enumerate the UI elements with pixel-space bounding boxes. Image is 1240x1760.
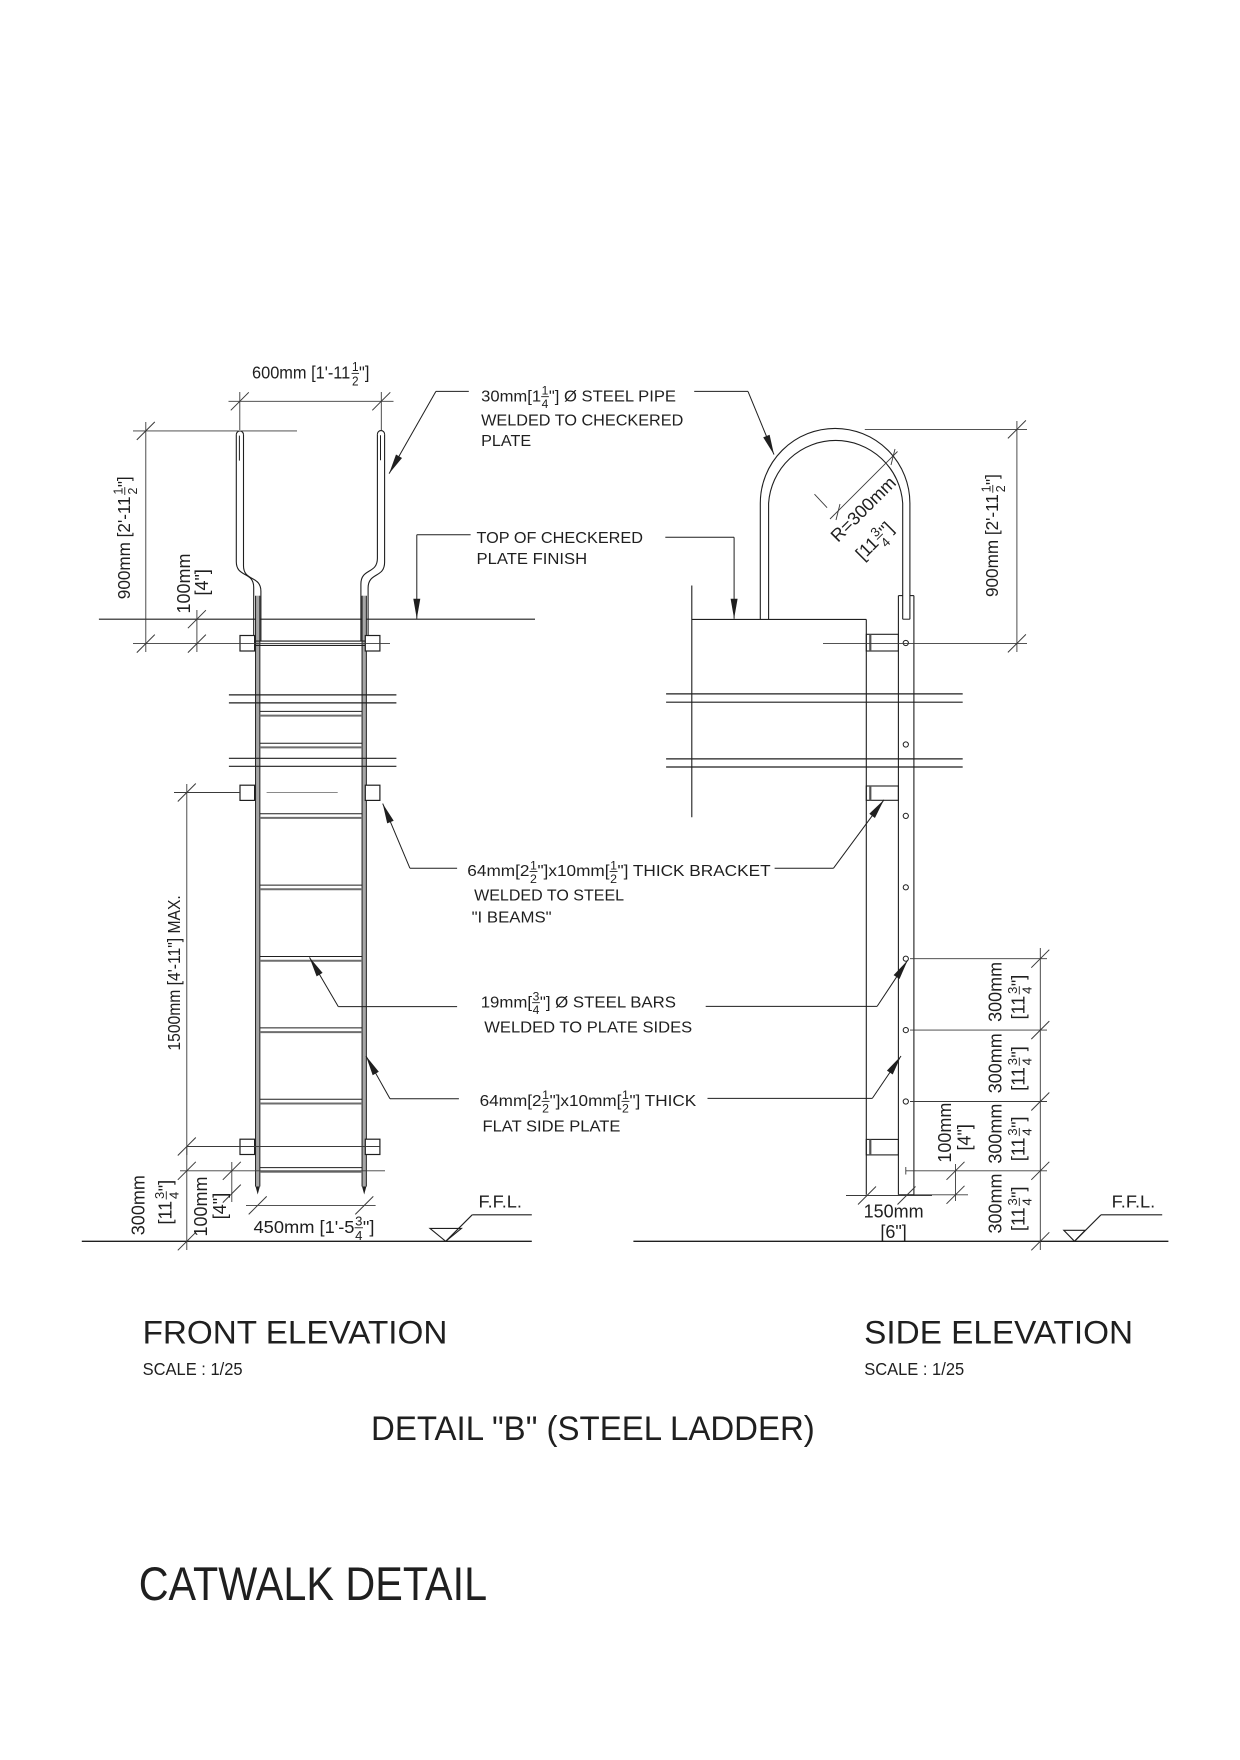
svg-text:"]: "] xyxy=(359,362,369,383)
svg-text:"]x10mm[: "]x10mm[ xyxy=(537,862,609,880)
svg-text:"]: "] xyxy=(363,1217,375,1237)
svg-text:4: 4 xyxy=(1020,1128,1035,1135)
svg-text:WELDED TO PLATE SIDES: WELDED TO PLATE SIDES xyxy=(484,1020,692,1037)
svg-text:DETAIL "B" (STEEL LADDER): DETAIL "B" (STEEL LADDER) xyxy=(371,1410,815,1448)
svg-text:4: 4 xyxy=(533,1003,540,1017)
svg-text:WELDED TO STEEL: WELDED TO STEEL xyxy=(474,887,624,904)
svg-text:1: 1 xyxy=(542,385,549,398)
svg-text:1: 1 xyxy=(542,1089,549,1102)
svg-text:"I BEAMS": "I BEAMS" xyxy=(472,910,552,927)
svg-text:"]: "] xyxy=(1009,975,1029,986)
svg-text:2: 2 xyxy=(622,1102,629,1115)
svg-text:[11: [11 xyxy=(156,1201,176,1225)
svg-text:PLATE FINISH: PLATE FINISH xyxy=(477,551,588,568)
svg-text:3: 3 xyxy=(1005,1058,1020,1065)
svg-text:SIDE ELEVATION: SIDE ELEVATION xyxy=(864,1315,1133,1351)
svg-text:100mm: 100mm xyxy=(935,1103,955,1163)
svg-text:3: 3 xyxy=(1005,987,1020,994)
svg-text:300mm: 300mm xyxy=(986,1104,1006,1164)
svg-text:1: 1 xyxy=(530,859,537,872)
svg-text:[11: [11 xyxy=(1009,1067,1029,1091)
svg-text:3: 3 xyxy=(1005,1198,1020,1205)
svg-text:64mm[2: 64mm[2 xyxy=(480,1092,542,1110)
svg-text:30mm[1: 30mm[1 xyxy=(481,388,541,406)
svg-text:2: 2 xyxy=(352,374,359,389)
svg-text:300mm: 300mm xyxy=(986,1033,1006,1093)
svg-text:3: 3 xyxy=(533,990,540,1004)
svg-text:"]: "] xyxy=(982,474,1002,485)
svg-text:"] Ø STEEL BARS: "] Ø STEEL BARS xyxy=(540,994,676,1012)
svg-text:19mm[: 19mm[ xyxy=(481,994,533,1012)
svg-text:4: 4 xyxy=(1020,1198,1035,1205)
svg-text:3: 3 xyxy=(152,1192,167,1199)
svg-text:CATWALK DETAIL: CATWALK DETAIL xyxy=(139,1557,487,1610)
svg-text:300mm: 300mm xyxy=(986,1174,1006,1234)
svg-text:[11: [11 xyxy=(1009,1207,1029,1231)
svg-text:"] THICK BRACKET: "] THICK BRACKET xyxy=(618,862,771,880)
svg-text:TOP OF CHECKERED: TOP OF CHECKERED xyxy=(477,530,644,547)
svg-text:2: 2 xyxy=(530,872,537,885)
svg-text:4: 4 xyxy=(355,1228,362,1243)
svg-text:F.F.L.: F.F.L. xyxy=(1112,1192,1156,1212)
svg-text:1: 1 xyxy=(610,859,617,872)
svg-text:1: 1 xyxy=(979,485,993,492)
svg-text:2: 2 xyxy=(126,488,140,495)
svg-text:"]: "] xyxy=(114,476,134,487)
svg-text:"]: "] xyxy=(1009,1046,1029,1057)
svg-text:"]: "] xyxy=(156,1180,176,1191)
svg-text:[11: [11 xyxy=(1009,1137,1029,1161)
svg-text:PLATE: PLATE xyxy=(481,433,531,450)
svg-text:100mm: 100mm xyxy=(191,1176,211,1236)
svg-text:300mm: 300mm xyxy=(128,1175,148,1235)
svg-text:SCALE : 1/25: SCALE : 1/25 xyxy=(143,1359,243,1379)
svg-text:2: 2 xyxy=(994,485,1008,492)
svg-text:2: 2 xyxy=(542,1102,549,1115)
svg-text:3: 3 xyxy=(355,1214,362,1229)
svg-text:1: 1 xyxy=(622,1089,629,1102)
svg-text:100mm: 100mm xyxy=(174,553,194,613)
svg-text:1500mm [4'-11"] MAX.: 1500mm [4'-11"] MAX. xyxy=(164,895,184,1050)
svg-text:4: 4 xyxy=(542,398,549,411)
svg-text:FLAT SIDE PLATE: FLAT SIDE PLATE xyxy=(483,1118,621,1135)
svg-text:450mm [1'-5: 450mm [1'-5 xyxy=(254,1217,355,1237)
svg-text:SCALE : 1/25: SCALE : 1/25 xyxy=(864,1359,964,1379)
svg-text:300mm: 300mm xyxy=(986,962,1006,1022)
svg-text:4: 4 xyxy=(1020,1058,1035,1065)
svg-text:3: 3 xyxy=(1005,1128,1020,1135)
svg-text:[4"]: [4"] xyxy=(192,569,212,595)
svg-text:[4"]: [4"] xyxy=(210,1193,230,1219)
svg-text:4: 4 xyxy=(1020,987,1035,994)
svg-text:"]x10mm[: "]x10mm[ xyxy=(550,1092,622,1110)
svg-text:150mm: 150mm xyxy=(864,1202,924,1222)
svg-text:[11: [11 xyxy=(1009,996,1029,1020)
svg-text:64mm[2: 64mm[2 xyxy=(467,862,529,880)
svg-text:900mm [2'-11: 900mm [2'-11 xyxy=(114,496,134,599)
svg-text:"]: "] xyxy=(1009,1186,1029,1197)
svg-text:900mm [2'-11: 900mm [2'-11 xyxy=(982,494,1002,597)
svg-text:"] THICK: "] THICK xyxy=(629,1092,696,1110)
svg-text:"]: "] xyxy=(1009,1117,1029,1128)
svg-text:1: 1 xyxy=(352,360,359,375)
svg-text:FRONT ELEVATION: FRONT ELEVATION xyxy=(143,1315,448,1351)
svg-text:1: 1 xyxy=(111,488,125,495)
svg-text:WELDED TO CHECKERED: WELDED TO CHECKERED xyxy=(481,412,683,429)
svg-text:[4"]: [4"] xyxy=(955,1124,975,1150)
svg-text:"] Ø STEEL PIPE: "] Ø STEEL PIPE xyxy=(549,388,676,406)
svg-text:F.F.L.: F.F.L. xyxy=(479,1192,523,1212)
svg-text:2: 2 xyxy=(610,872,617,885)
svg-text:4: 4 xyxy=(167,1192,182,1199)
svg-text:[6"]: [6"] xyxy=(880,1222,906,1242)
svg-text:600mm [1'-11: 600mm [1'-11 xyxy=(252,362,350,383)
